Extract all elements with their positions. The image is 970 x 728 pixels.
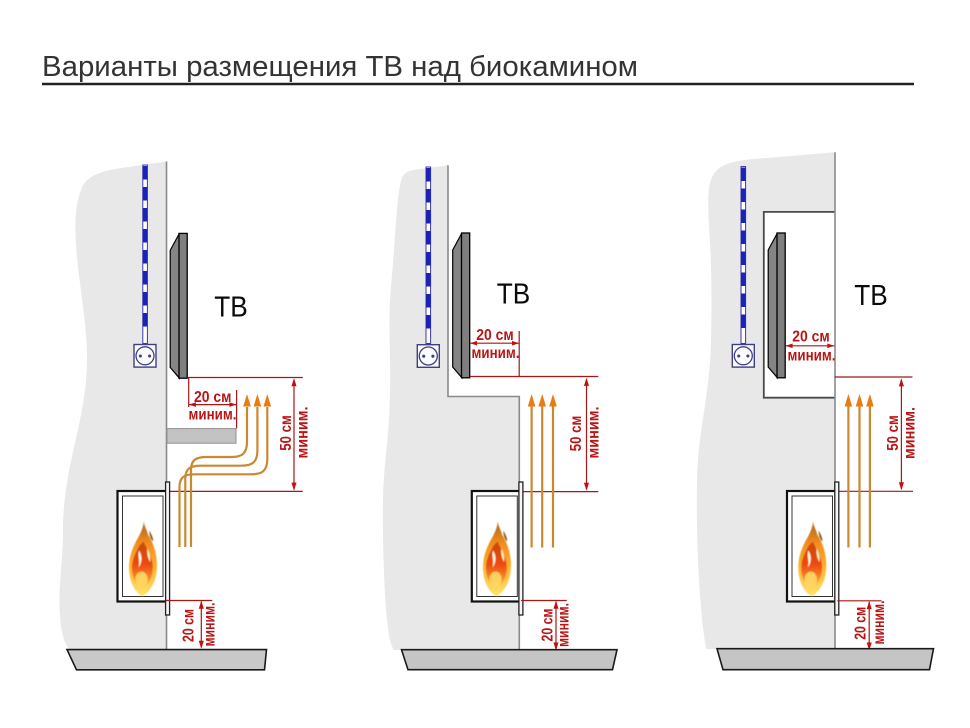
svg-text:20 см: 20 см bbox=[792, 329, 830, 346]
svg-text:20 см: 20 см bbox=[539, 609, 556, 642]
svg-text:миним.: миним. bbox=[295, 407, 312, 459]
svg-text:20 см: 20 см bbox=[194, 389, 232, 406]
svg-text:миним.: миним. bbox=[901, 407, 918, 459]
svg-text:миним.: миним. bbox=[871, 601, 888, 645]
svg-text:ТВ: ТВ bbox=[854, 280, 888, 312]
svg-text:ТВ: ТВ bbox=[214, 292, 248, 324]
svg-text:миним.: миним. bbox=[586, 407, 603, 459]
svg-text:миним.: миним. bbox=[202, 603, 219, 647]
svg-text:50 см: 50 см bbox=[278, 415, 295, 451]
svg-text:20 см: 20 см bbox=[852, 607, 869, 640]
svg-text:миним.: миним. bbox=[556, 603, 573, 647]
svg-text:миним.: миним. bbox=[189, 407, 237, 424]
svg-text:ТВ: ТВ bbox=[497, 279, 531, 311]
svg-text:20 см: 20 см bbox=[476, 327, 514, 344]
svg-text:миним.: миним. bbox=[788, 348, 836, 365]
svg-text:50 см: 50 см bbox=[568, 416, 585, 452]
svg-text:миним.: миним. bbox=[472, 345, 520, 362]
svg-text:Варианты размещения ТВ над био: Варианты размещения ТВ над биокамином bbox=[42, 51, 638, 83]
svg-text:20 см: 20 см bbox=[181, 609, 198, 642]
svg-text:50 см: 50 см bbox=[885, 415, 902, 451]
